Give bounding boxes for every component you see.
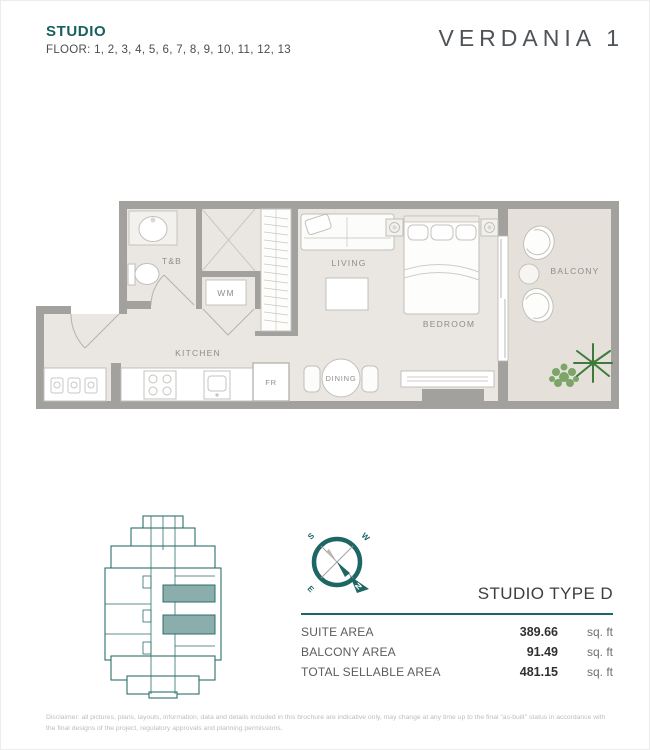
nightstand-icon bbox=[481, 219, 498, 236]
compass-w: W bbox=[360, 531, 372, 543]
area-row-balcony: BALCONY AREA 91.49 sq. ft bbox=[301, 645, 613, 665]
key-plan bbox=[103, 514, 223, 700]
kitchen-counter-icon bbox=[44, 368, 253, 401]
teal-divider bbox=[301, 613, 613, 615]
room-label-fr: FR bbox=[265, 378, 277, 387]
floor-list: FLOOR: 1, 2, 3, 4, 5, 6, 7, 8, 9, 10, 11… bbox=[46, 44, 291, 56]
disclaimer-text: Disclaimer: all pictures, plans, layouts… bbox=[46, 713, 612, 734]
room-label-balcony: BALCONY bbox=[550, 266, 599, 276]
room-label-tb: T&B bbox=[162, 256, 182, 266]
bed-icon bbox=[404, 216, 479, 314]
wardrobe-icon bbox=[261, 209, 291, 331]
unit-details-panel: STUDIO TYPE D SUITE AREA 389.66 sq. ft B… bbox=[301, 584, 613, 685]
area-label: SUITE AREA bbox=[301, 625, 486, 639]
vanity-sink-icon bbox=[129, 211, 177, 245]
toilet-icon bbox=[128, 264, 159, 286]
unit-type-title: STUDIO TYPE D bbox=[301, 584, 613, 604]
room-label-wm: WM bbox=[217, 288, 235, 298]
tv-console-icon bbox=[401, 371, 494, 387]
area-label: TOTAL SELLABLE AREA bbox=[301, 665, 486, 679]
brochure-page: STUDIO FLOOR: 1, 2, 3, 4, 5, 6, 7, 8, 9,… bbox=[0, 0, 650, 750]
room-label-dining: DINING bbox=[325, 374, 356, 383]
area-unit: sq. ft bbox=[558, 625, 613, 639]
page-title: STUDIO bbox=[46, 23, 106, 40]
compass-s: S bbox=[306, 531, 317, 542]
coffee-table-icon bbox=[326, 278, 368, 310]
area-label: BALCONY AREA bbox=[301, 645, 486, 659]
sliding-door bbox=[498, 236, 508, 361]
area-value: 91.49 bbox=[486, 645, 558, 659]
nightstand-icon bbox=[386, 219, 403, 236]
area-value: 389.66 bbox=[486, 625, 558, 639]
room-label-kitchen: KITCHEN bbox=[175, 348, 221, 358]
brand-logo: VERDANIA 1 bbox=[439, 25, 625, 52]
floor-plan: T&B WM LIVING BEDROOM BALCONY KITCHEN FR… bbox=[26, 186, 631, 424]
sofa-icon bbox=[301, 214, 394, 250]
room-label-living: LIVING bbox=[331, 258, 366, 268]
balcony-table-icon bbox=[519, 264, 539, 284]
area-unit: sq. ft bbox=[558, 645, 613, 659]
area-unit: sq. ft bbox=[558, 665, 613, 679]
area-row-suite: SUITE AREA 389.66 sq. ft bbox=[301, 625, 613, 645]
area-row-total: TOTAL SELLABLE AREA 481.15 sq. ft bbox=[301, 665, 613, 685]
room-label-bedroom: BEDROOM bbox=[423, 319, 475, 329]
area-value: 481.15 bbox=[486, 665, 558, 679]
